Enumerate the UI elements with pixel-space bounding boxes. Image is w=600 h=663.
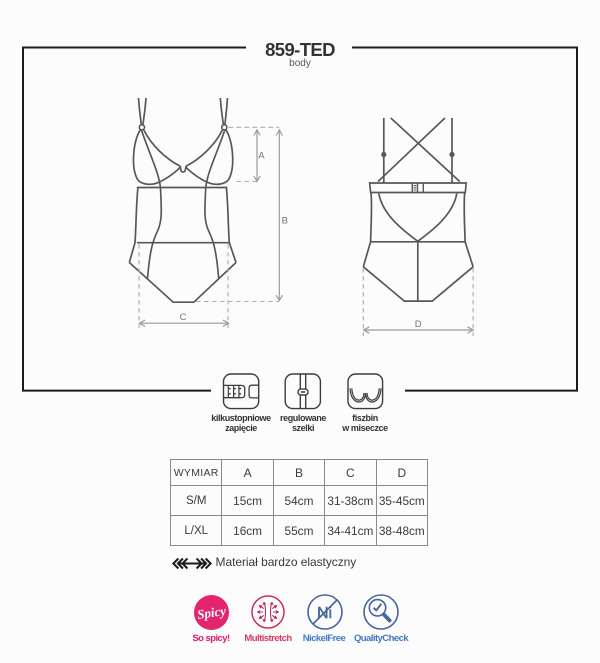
svg-text:D: D (415, 319, 422, 330)
svg-text:C: C (180, 312, 187, 323)
svg-text:B: B (282, 216, 288, 227)
svg-text:A: A (258, 151, 265, 162)
